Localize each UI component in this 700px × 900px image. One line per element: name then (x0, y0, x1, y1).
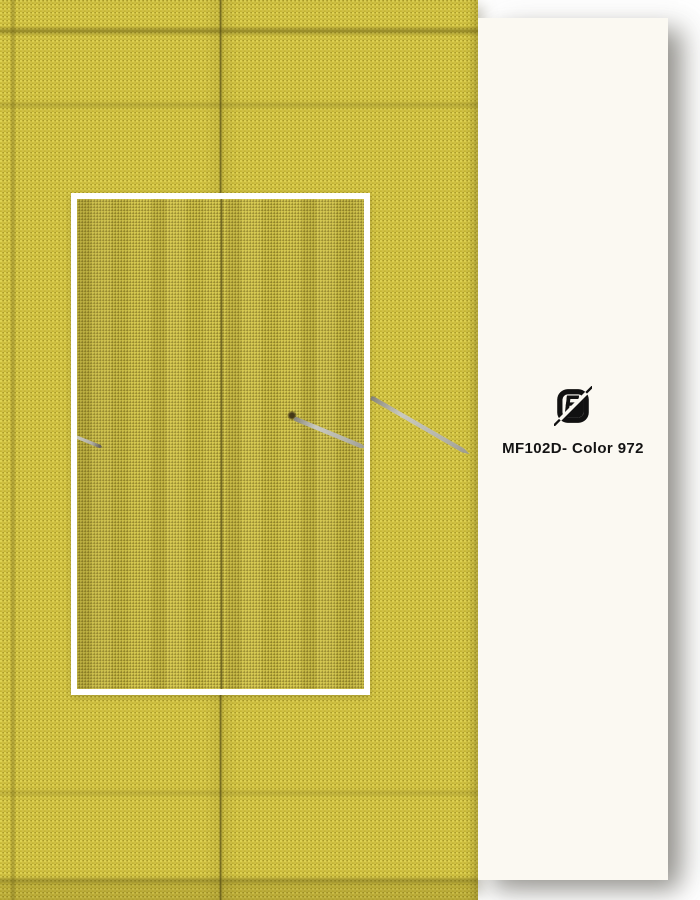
fabric-fold-crease (0, 788, 478, 798)
fabric-fold-crease (0, 26, 478, 36)
brand-block: MF102D- Color 972 (478, 386, 668, 457)
fabric-fold-crease (0, 100, 478, 110)
sewing-pin-icon (370, 395, 471, 456)
fabric-fold-shadow (0, 884, 478, 900)
swatch-card: MF102D- Color 972 (0, 0, 700, 900)
product-code-label: MF102D- Color 972 (478, 440, 668, 457)
inset-seam-line (220, 199, 223, 689)
info-panel: MF102D- Color 972 (478, 18, 668, 880)
brand-fabric-monogram-icon (554, 386, 592, 426)
fabric-zoom-inset (71, 193, 370, 695)
fabric-vertical-crease (10, 0, 16, 900)
